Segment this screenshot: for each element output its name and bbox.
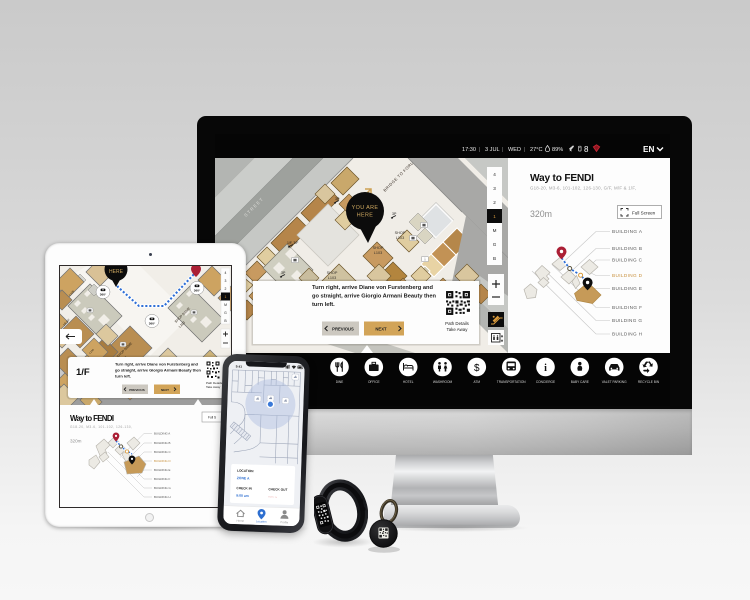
svg-text:i: i: [425, 257, 426, 261]
svg-text:BUILDING A: BUILDING A: [612, 229, 643, 234]
svg-text:|: |: [524, 147, 525, 153]
svg-text:M: M: [224, 303, 227, 307]
svg-text:CHECK IN: CHECK IN: [236, 486, 252, 491]
svg-text:3 JUL: 3 JUL: [485, 147, 500, 153]
svg-text:320m: 320m: [70, 439, 82, 444]
svg-text:HERE: HERE: [109, 269, 124, 275]
svg-text:CHECK OUT: CHECK OUT: [268, 487, 287, 492]
svg-text:CONCIERGE: CONCIERGE: [536, 380, 555, 384]
svg-text:Turn right, arrive Diane von F: Turn right, arrive Diane von Furstenberg…: [312, 285, 434, 291]
svg-text:RECYCLE BIN: RECYCLE BIN: [638, 380, 660, 384]
svg-text:WASHROOM: WASHROOM: [433, 380, 453, 384]
svg-text:ATM: ATM: [474, 380, 481, 384]
svg-text:3: 3: [225, 279, 227, 283]
svg-text:PREVIOUS: PREVIOUS: [129, 388, 145, 392]
svg-text:27°C: 27°C: [530, 147, 543, 153]
svg-text:PREVIOUS: PREVIOUS: [332, 327, 354, 332]
svg-text:G18-20, M3-6, 101-102, 126-130: G18-20, M3-6, 101-102, 126-130,: [70, 425, 132, 429]
svg-text:BUILDING G: BUILDING G: [612, 318, 642, 323]
svg-text:Full S: Full S: [208, 416, 216, 420]
svg-text:B: B: [493, 256, 496, 261]
svg-text:2: 2: [225, 287, 227, 291]
svg-text:320m: 320m: [530, 209, 552, 219]
svg-text:turn left.: turn left.: [115, 374, 131, 379]
svg-text:9:41: 9:41: [235, 364, 242, 368]
svg-text:Location: Location: [255, 519, 266, 523]
svg-text:BABY CARE: BABY CARE: [571, 380, 589, 384]
svg-text:3P: 3P: [392, 212, 397, 216]
svg-text:i: i: [544, 363, 547, 374]
svg-text:BUILDING B: BUILDING B: [612, 246, 642, 251]
svg-text:HOTEL: HOTEL: [403, 380, 414, 384]
svg-text:Way to FENDI: Way to FENDI: [530, 173, 594, 184]
svg-text:1/F: 1/F: [76, 367, 90, 378]
svg-text:|: |: [479, 147, 480, 153]
svg-text:L103: L103: [328, 276, 336, 280]
svg-text:BUILDING A: BUILDING A: [154, 432, 170, 436]
svg-text:3P: 3P: [281, 271, 286, 275]
svg-text:G18-20, M3-6, 101-102, 126-130: G18-20, M3-6, 101-102, 126-130, G/F, M/F…: [530, 186, 636, 191]
svg-text:BUILDING H: BUILDING H: [154, 495, 171, 499]
svg-text:SHOP: SHOP: [395, 231, 406, 235]
svg-text:G: G: [224, 311, 227, 315]
svg-text:|: |: [502, 147, 503, 153]
svg-text:360°: 360°: [149, 322, 156, 326]
svg-text:DINE: DINE: [336, 380, 344, 384]
svg-text:BUILDING B: BUILDING B: [154, 441, 170, 445]
svg-text:NEXT: NEXT: [161, 388, 169, 392]
svg-text:Full Screen: Full Screen: [632, 211, 656, 216]
svg-text:BUILDING H: BUILDING H: [612, 332, 642, 337]
svg-text:4: 4: [493, 172, 496, 177]
svg-text:TRANSPORTATION: TRANSPORTATION: [497, 380, 527, 384]
svg-text:turn left.: turn left.: [312, 302, 335, 308]
svg-text:BUILDING D: BUILDING D: [154, 459, 171, 463]
svg-text:SHOP: SHOP: [327, 271, 338, 275]
svg-text:HERE: HERE: [357, 213, 374, 219]
svg-text:LOCATION: LOCATION: [236, 468, 253, 473]
svg-text:3: 3: [493, 186, 496, 191]
svg-text:BUILDING E: BUILDING E: [612, 286, 642, 291]
svg-text:BUILDING E: BUILDING E: [154, 468, 170, 472]
svg-text:3P: 3P: [335, 197, 340, 201]
svg-text:BUILDING F: BUILDING F: [154, 477, 170, 481]
svg-text:8: 8: [584, 145, 589, 154]
svg-text:VALET PARKING: VALET PARKING: [602, 380, 627, 384]
svg-text:360°: 360°: [194, 289, 201, 293]
svg-text:BUILDING F: BUILDING F: [612, 305, 642, 310]
svg-text:17:30: 17:30: [462, 147, 476, 153]
svg-text:M: M: [493, 228, 497, 233]
svg-text:Turn right, arrive Diane von F: Turn right, arrive Diane von Furstenberg…: [115, 362, 199, 367]
svg-text:BUILDING D: BUILDING D: [612, 273, 643, 278]
svg-text:89%: 89%: [552, 147, 563, 153]
svg-text:Take Away: Take Away: [206, 385, 221, 389]
svg-text:Path Details: Path Details: [445, 321, 469, 326]
svg-text:9:00 am: 9:00 am: [236, 493, 249, 497]
svg-text:BUILDING G: BUILDING G: [154, 486, 171, 490]
svg-text:OFFICE: OFFICE: [368, 380, 380, 384]
svg-text:NEXT: NEXT: [375, 327, 387, 332]
svg-text:L103: L103: [396, 236, 404, 240]
svg-text:Home: Home: [236, 518, 244, 522]
svg-text:Way to FENDI: Way to FENDI: [70, 414, 114, 423]
svg-text:1: 1: [493, 214, 496, 219]
svg-text:1: 1: [225, 295, 227, 299]
svg-text:L103: L103: [374, 251, 382, 255]
svg-text:BUILDING C: BUILDING C: [612, 258, 643, 263]
svg-text:Take Away: Take Away: [447, 327, 469, 332]
svg-text:Profile: Profile: [280, 520, 289, 524]
svg-text:go straight, arrive Giorgio Ar: go straight, arrive Giorgio Armani Beaut…: [115, 368, 202, 373]
svg-text:G: G: [493, 242, 497, 247]
svg-text:4: 4: [225, 271, 227, 275]
svg-text:go straight, arrive Giorgio Ar: go straight, arrive Giorgio Armani Beaut…: [312, 294, 437, 300]
svg-text:--:-- --: --:-- --: [268, 494, 277, 498]
svg-text:360°: 360°: [100, 293, 107, 297]
svg-text:2: 2: [493, 200, 496, 205]
svg-text:EN: EN: [643, 145, 654, 154]
svg-text:BUILDING C: BUILDING C: [154, 450, 171, 454]
svg-text:ZONE A: ZONE A: [236, 476, 249, 480]
svg-text:SHOP: SHOP: [373, 246, 384, 250]
svg-text:WED: WED: [508, 147, 521, 153]
svg-text:YOU ARE: YOU ARE: [352, 205, 379, 211]
svg-text:$: $: [474, 363, 480, 374]
